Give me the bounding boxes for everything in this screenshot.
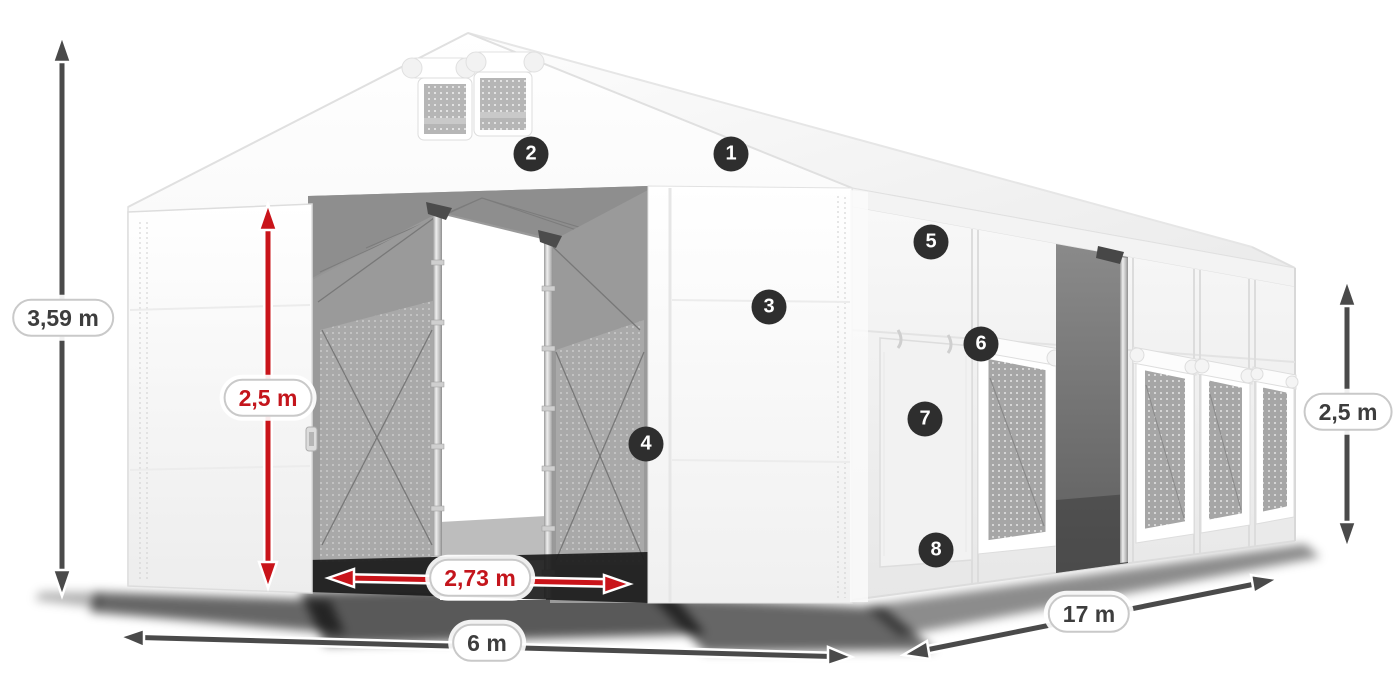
corner-strap (850, 190, 868, 602)
callout-8[interactable]: 8 (919, 533, 954, 568)
callout-3[interactable]: 3 (752, 290, 787, 325)
callout-5[interactable]: 5 (914, 225, 949, 260)
dimension-label-entrance-height: 2,5 m (224, 379, 313, 417)
callout-6[interactable]: 6 (964, 327, 999, 362)
front-right-wall (648, 186, 852, 603)
callout-4[interactable]: 4 (629, 427, 664, 462)
callout-1[interactable]: 1 (714, 137, 749, 172)
callout-7[interactable]: 7 (908, 402, 943, 437)
dimension-label-entrance-width: 2,73 m (429, 559, 531, 597)
side-window-2 (1130, 347, 1199, 543)
dimension-label-side-height: 2,5 m (1304, 393, 1393, 431)
side-entrance-flap (880, 330, 972, 567)
front-opening-interior (308, 186, 648, 603)
dimension-label-width: 6 m (452, 624, 522, 662)
callout-2[interactable]: 2 (514, 137, 549, 172)
side-window-4 (1251, 367, 1298, 524)
dimension-label-total-height: 3,59 m (12, 299, 114, 337)
dimension-label-length: 17 m (1048, 595, 1130, 633)
side-window-3 (1195, 359, 1255, 533)
tent-illustration (0, 0, 1400, 700)
tent-diagram: 3,59 m 2,5 m 2,73 m 6 m 17 m 2,5 m 1 2 3… (0, 0, 1400, 700)
side-window-1 (971, 334, 1063, 554)
side-open-door (1056, 244, 1128, 573)
